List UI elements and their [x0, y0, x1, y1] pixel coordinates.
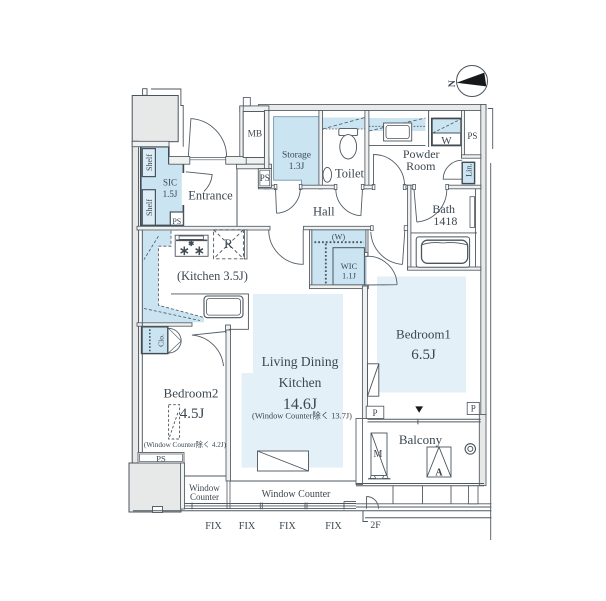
svg-text:Living Dining: Living Dining	[262, 354, 339, 369]
svg-text:(Window Counter除く 13.7J): (Window Counter除く 13.7J)	[252, 410, 352, 420]
svg-text:(Window Counter除く 4.2J): (Window Counter除く 4.2J)	[144, 440, 227, 449]
svg-text:P: P	[471, 404, 476, 414]
svg-text:1.5J: 1.5J	[163, 189, 178, 199]
svg-text:FIX: FIX	[239, 521, 256, 532]
svg-text:Window Counter: Window Counter	[262, 489, 331, 500]
svg-text:PS: PS	[172, 217, 181, 226]
svg-text:6.5J: 6.5J	[411, 347, 436, 363]
svg-text:1.3J: 1.3J	[289, 162, 305, 172]
svg-text:Hall: Hall	[313, 204, 335, 218]
svg-text:W: W	[441, 135, 452, 147]
svg-text:4.5J: 4.5J	[180, 406, 205, 422]
svg-text:WIC: WIC	[341, 261, 358, 271]
svg-text:Kitchen: Kitchen	[279, 375, 322, 390]
svg-text:FIX: FIX	[325, 521, 342, 532]
svg-text:Clo.: Clo.	[157, 334, 166, 347]
svg-text:Toilet: Toilet	[335, 166, 365, 180]
svg-text:Entrance: Entrance	[188, 189, 233, 203]
svg-text:R: R	[224, 236, 233, 251]
svg-text:1.1J: 1.1J	[342, 271, 357, 281]
svg-text:1418: 1418	[433, 214, 457, 228]
svg-text:PS: PS	[156, 454, 166, 464]
svg-text:Shelf: Shelf	[145, 199, 154, 216]
svg-text:Bedroom2: Bedroom2	[164, 386, 219, 401]
svg-text:P: P	[372, 408, 377, 418]
svg-text:PS: PS	[467, 131, 477, 141]
svg-text:Balcony: Balcony	[399, 432, 443, 447]
svg-text:Counter: Counter	[190, 492, 219, 502]
svg-text:Room: Room	[406, 159, 436, 173]
svg-text:Bedroom1: Bedroom1	[396, 327, 451, 342]
svg-text:Shelf: Shelf	[145, 154, 154, 171]
svg-text:A: A	[435, 468, 443, 479]
svg-text:PS: PS	[260, 173, 270, 183]
svg-text:Lin.: Lin.	[464, 163, 473, 176]
svg-text:(W): (W)	[332, 232, 345, 241]
svg-text:N: N	[447, 80, 458, 87]
svg-text:FIX: FIX	[205, 521, 222, 532]
svg-text:(Kitchen 3.5J): (Kitchen 3.5J)	[177, 269, 248, 283]
svg-text:M: M	[374, 449, 383, 460]
svg-text:SIC: SIC	[163, 177, 177, 187]
svg-text:MB: MB	[248, 129, 262, 139]
svg-text:2F: 2F	[370, 520, 381, 531]
svg-text:Storage: Storage	[282, 151, 311, 161]
svg-text:FIX: FIX	[279, 521, 296, 532]
